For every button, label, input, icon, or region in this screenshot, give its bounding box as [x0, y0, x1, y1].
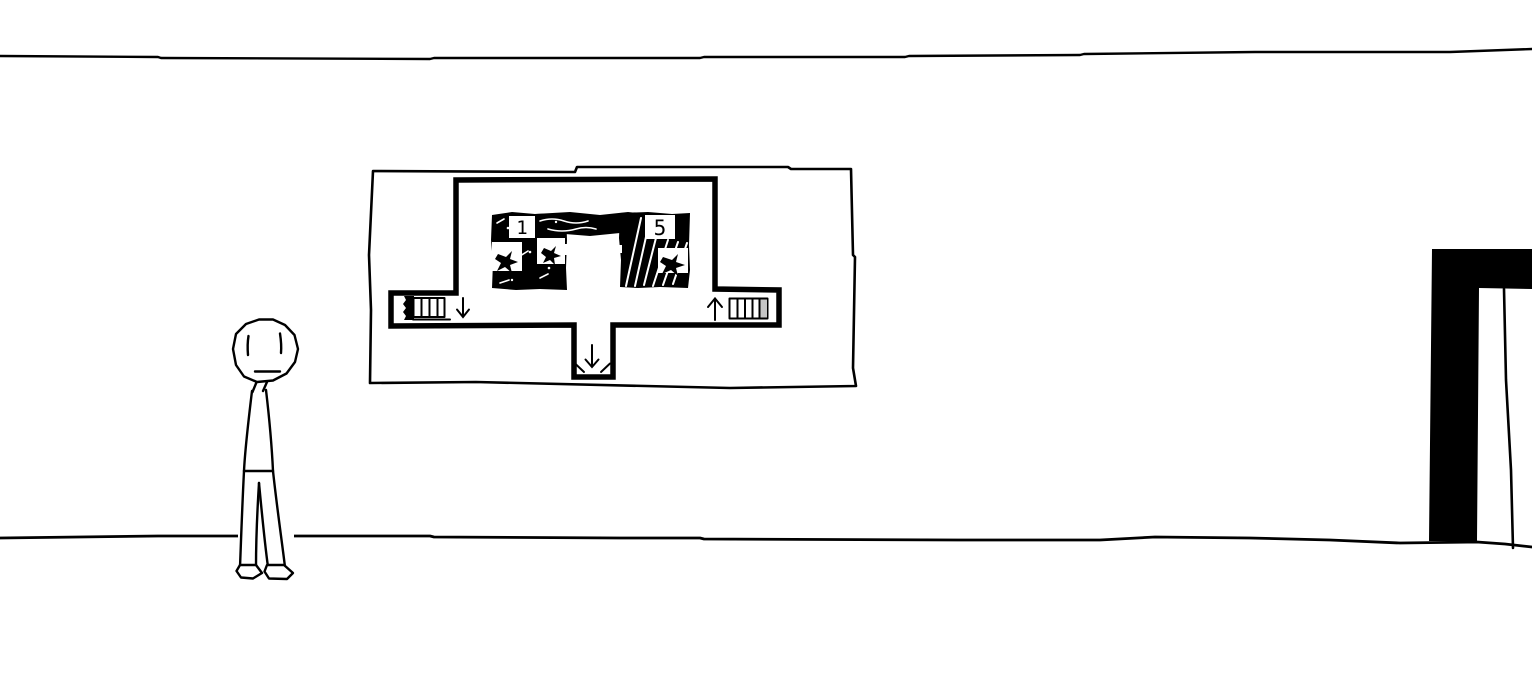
- left-foot: [237, 565, 263, 579]
- scene-svg: 1 5: [0, 0, 1532, 678]
- hatch-speck: [529, 251, 532, 254]
- stairs-shade-cell: [760, 300, 768, 318]
- ceiling-line: [0, 49, 1532, 59]
- hatch-speck: [548, 267, 551, 270]
- hatch-speck: [555, 221, 557, 223]
- left-stairs-icon: [403, 296, 450, 320]
- hatch-speck: [511, 279, 513, 281]
- doorway[interactable]: [1429, 249, 1532, 548]
- game-scene: 1 5: [0, 0, 1532, 678]
- right-stairs-icon: [730, 299, 768, 319]
- door-frame-edge: [1504, 289, 1513, 548]
- player-character[interactable]: [233, 320, 298, 580]
- floor-line: [0, 536, 1532, 547]
- right-eye: [280, 334, 281, 354]
- map-door-notch: [613, 245, 622, 253]
- right-foot: [265, 565, 294, 579]
- door-opening: [1429, 249, 1532, 541]
- room-1-label: 1: [516, 217, 527, 239]
- left-eye: [248, 336, 249, 355]
- room-5-label: 5: [654, 216, 667, 240]
- map-door-notch: [560, 244, 568, 255]
- hatch-speck: [507, 227, 510, 230]
- map-poster[interactable]: 1 5: [369, 167, 856, 388]
